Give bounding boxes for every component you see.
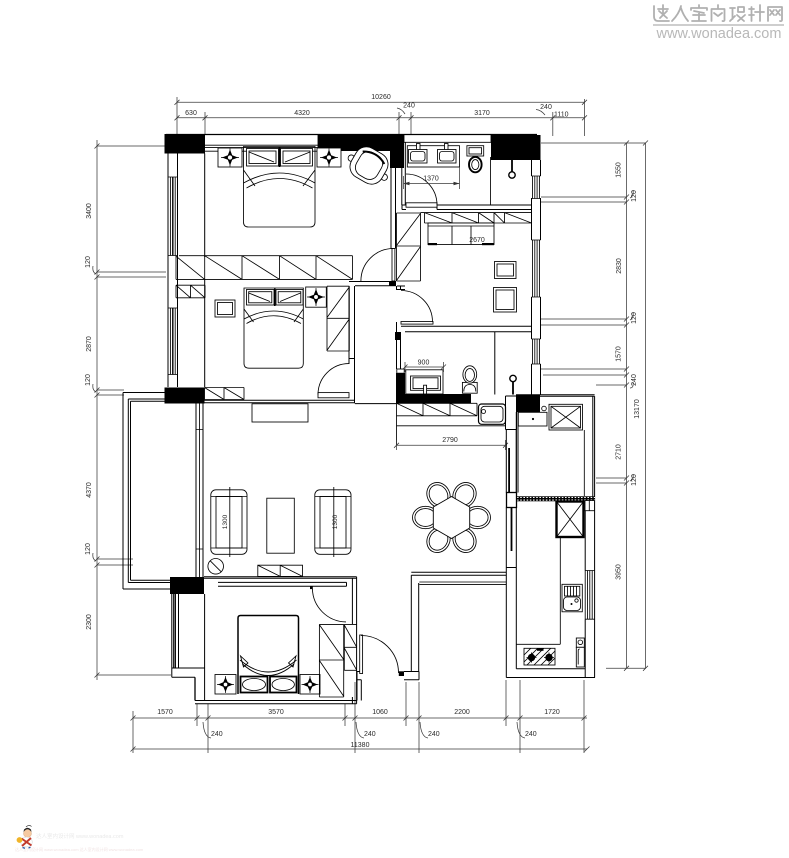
svg-text:1550: 1550: [616, 162, 623, 178]
svg-text:1720: 1720: [544, 709, 560, 716]
svg-text:3570: 3570: [268, 709, 284, 716]
svg-text:900: 900: [418, 360, 430, 367]
svg-text:13170: 13170: [634, 399, 641, 419]
svg-text:2300: 2300: [86, 614, 93, 630]
svg-text:240: 240: [364, 731, 376, 738]
svg-text:2710: 2710: [616, 444, 623, 460]
svg-text:1300: 1300: [332, 514, 339, 529]
svg-text:2830: 2830: [616, 258, 623, 274]
svg-text:240: 240: [428, 731, 440, 738]
svg-text:1570: 1570: [616, 346, 623, 362]
svg-text:240: 240: [540, 104, 552, 111]
svg-text:2670: 2670: [469, 237, 485, 244]
svg-text:240: 240: [403, 103, 415, 110]
svg-text:3400: 3400: [86, 203, 93, 219]
svg-text:2200: 2200: [454, 709, 470, 716]
svg-text:达人室内设计网 www.wonadea.com: 达人室内设计网 www.wonadea.com: [36, 832, 124, 840]
svg-text:1570: 1570: [157, 709, 173, 716]
svg-text:3170: 3170: [474, 110, 490, 117]
svg-text:1110: 1110: [554, 112, 569, 119]
svg-text:4320: 4320: [294, 110, 310, 117]
svg-text:120: 120: [85, 374, 92, 386]
svg-text:1060: 1060: [372, 709, 388, 716]
svg-text:4370: 4370: [86, 482, 93, 498]
svg-text:120: 120: [631, 474, 638, 486]
svg-text:120: 120: [85, 543, 92, 555]
svg-text:630: 630: [185, 110, 197, 117]
svg-text:1370: 1370: [423, 176, 439, 183]
svg-text:达人室内设计网 www.wonadea.com 达人室内设计: 达人室内设计网 www.wonadea.com 达人室内设计网 www.wona…: [15, 846, 144, 852]
svg-text:2790: 2790: [442, 437, 458, 444]
svg-text:www.wonadea.com: www.wonadea.com: [656, 26, 782, 42]
svg-text:120: 120: [631, 190, 638, 202]
svg-text:3950: 3950: [616, 564, 623, 580]
svg-text:1300: 1300: [222, 514, 229, 529]
svg-text:11380: 11380: [351, 742, 370, 749]
svg-text:10260: 10260: [371, 94, 391, 101]
svg-text:2870: 2870: [86, 336, 93, 352]
svg-text:240: 240: [631, 374, 638, 386]
svg-text:120: 120: [631, 312, 638, 324]
svg-text:240: 240: [525, 731, 537, 738]
svg-text:240: 240: [211, 731, 223, 738]
svg-text:120: 120: [85, 256, 92, 268]
